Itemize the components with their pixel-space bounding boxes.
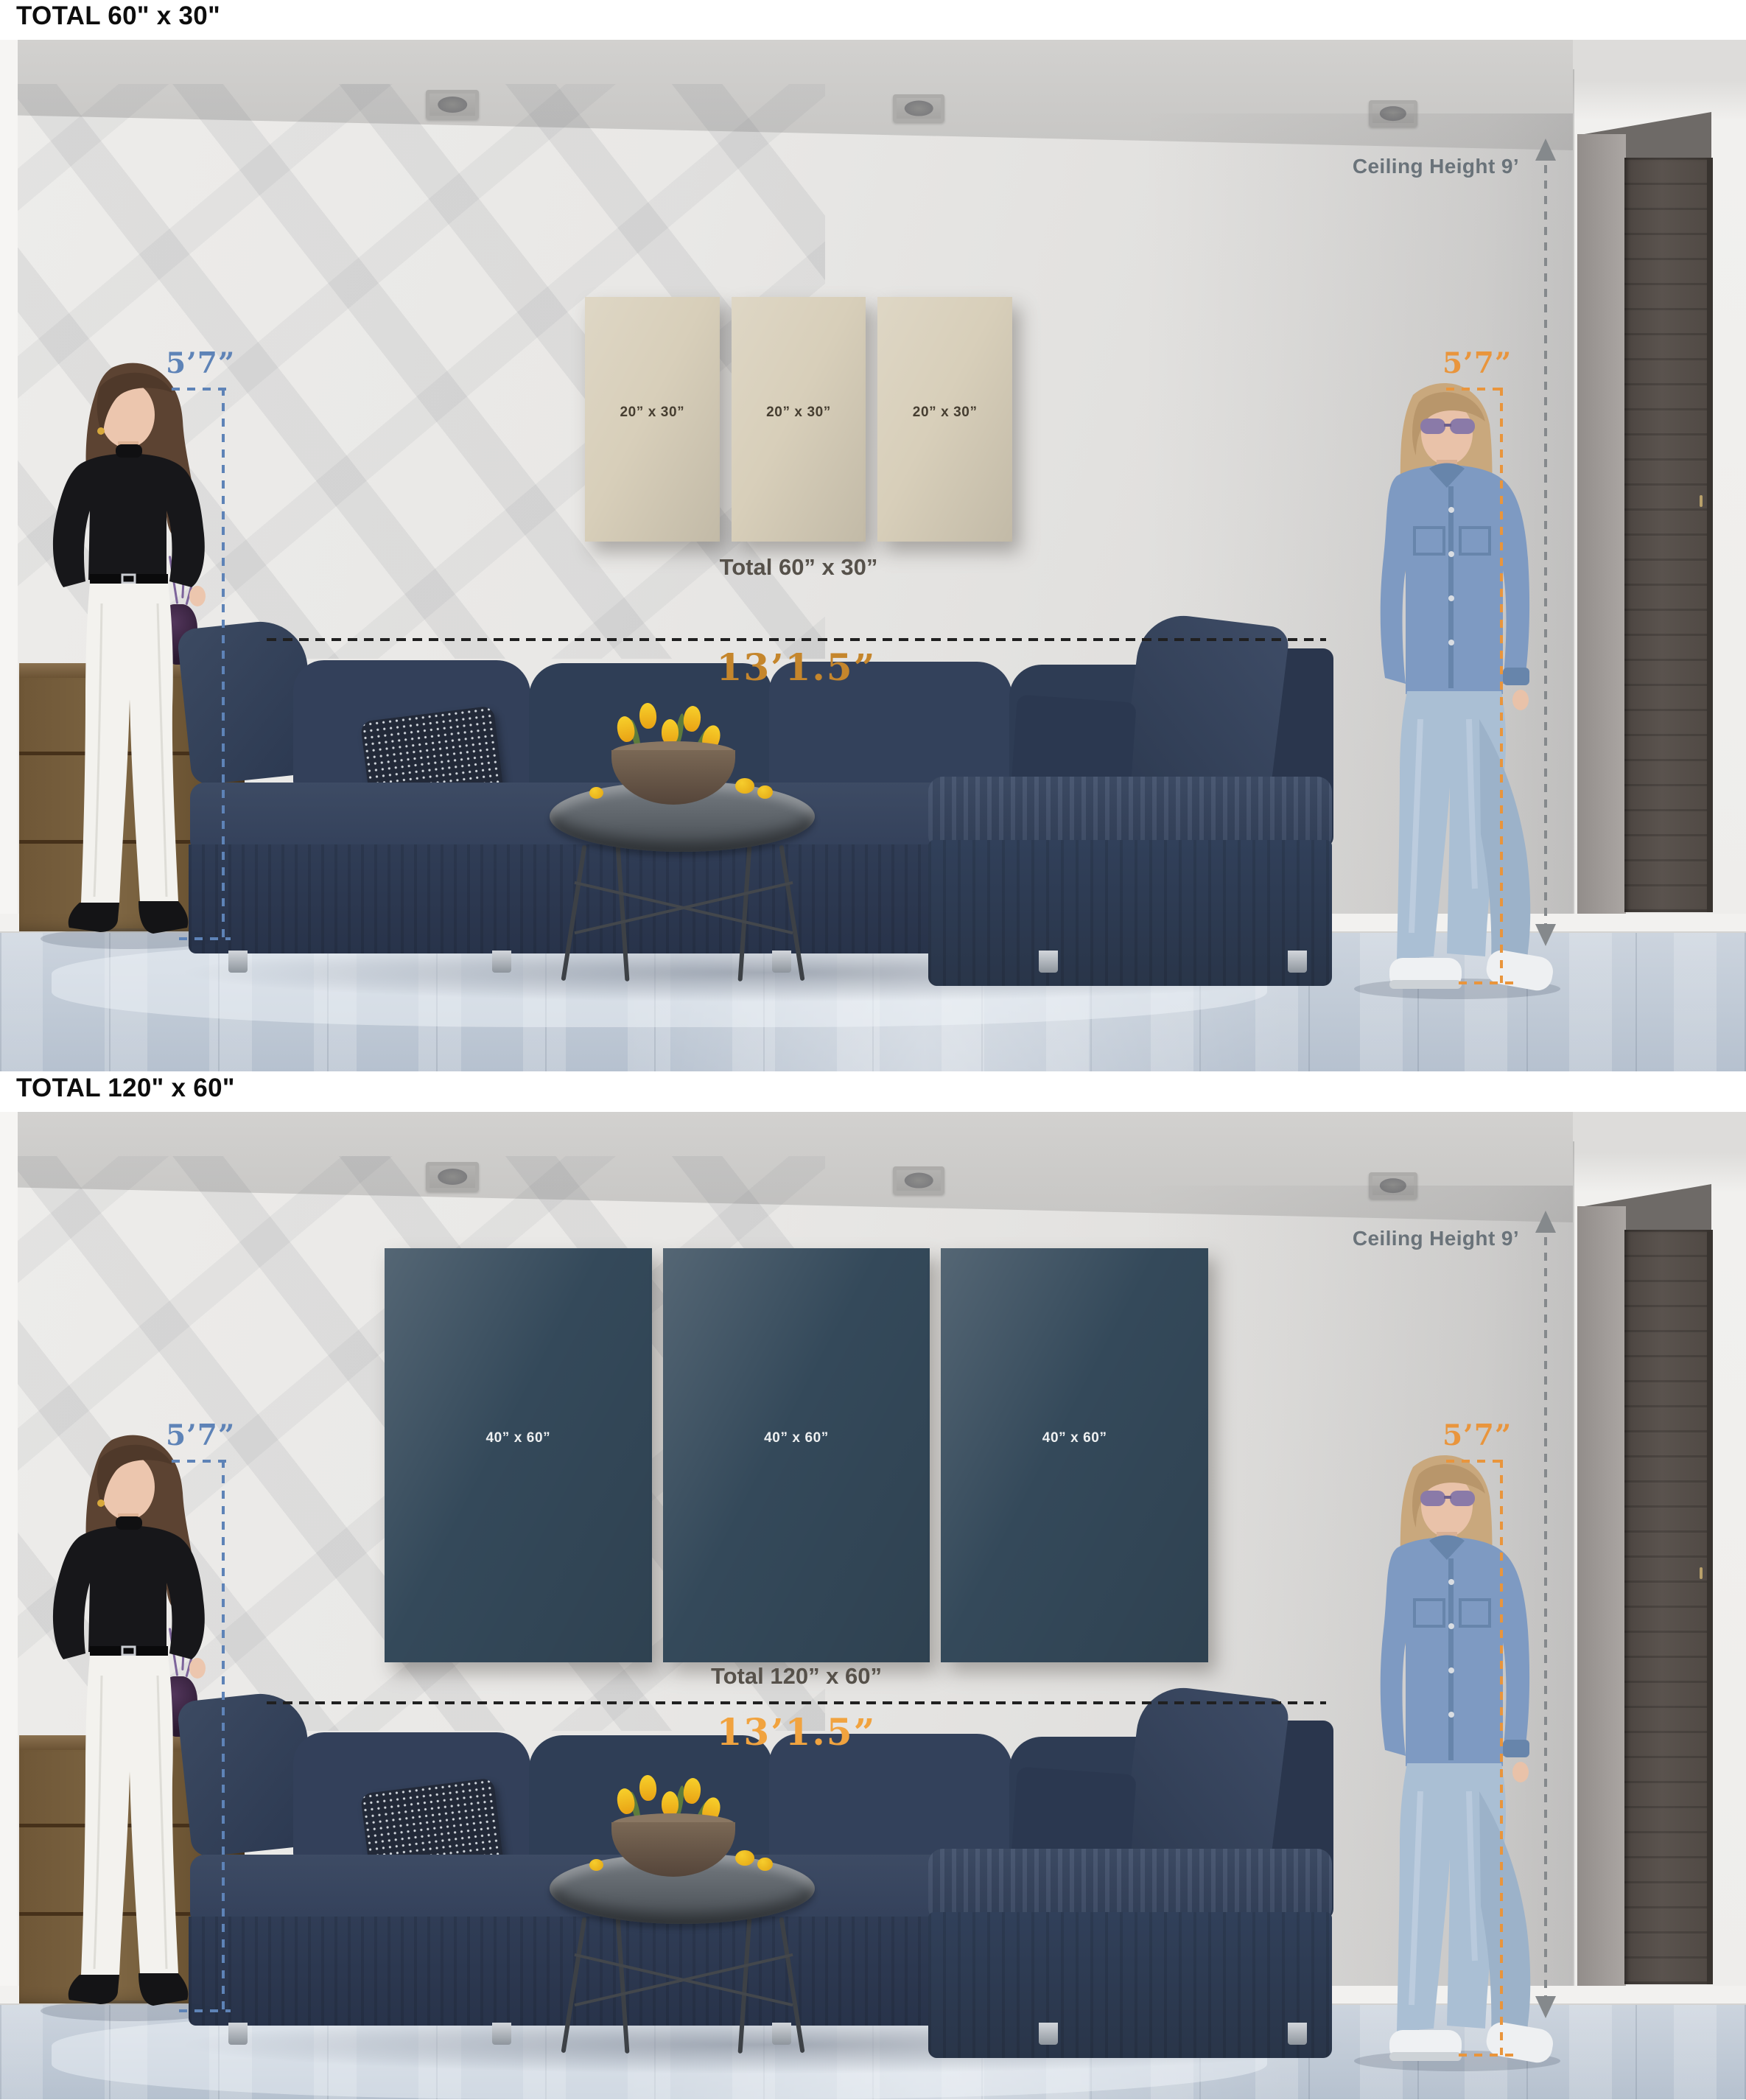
ceiling-height-label: Ceiling Height 9’ — [1319, 155, 1519, 178]
table-leg — [779, 1917, 804, 2054]
jacket-button — [1448, 1712, 1454, 1718]
lemon — [735, 778, 754, 794]
chaise — [928, 840, 1332, 986]
canvas-total-caption: Total 60” x 30” — [585, 554, 1012, 581]
jacket-button — [1448, 1623, 1454, 1629]
table-leg — [738, 844, 752, 981]
table-leg — [616, 844, 630, 981]
canvas-panel: 20” x 30” — [732, 297, 866, 542]
hand — [1512, 1762, 1529, 1782]
chaise — [928, 1912, 1332, 2058]
figure-shadow — [41, 928, 217, 949]
arrow-down-icon — [1535, 1996, 1556, 2018]
recessed-light — [893, 1166, 944, 1194]
canvas-panel: 20” x 30” — [585, 297, 720, 542]
shoe — [69, 903, 119, 932]
denim-jacket — [1381, 1537, 1529, 1766]
sofa-foot — [1039, 2023, 1058, 2045]
hand — [189, 1658, 206, 1679]
table-leg — [779, 845, 804, 981]
dashed-line — [1446, 388, 1504, 391]
jacket-cuff — [1503, 668, 1529, 685]
sunglasses-bridge — [1444, 1496, 1451, 1499]
canvas-size-label: 20” x 30” — [732, 405, 866, 421]
room-scene: 20” x 30” 20” x 30” 20” x 30” Total 60” … — [0, 40, 1746, 1071]
sunglasses — [1450, 1491, 1475, 1506]
lemon — [589, 1859, 603, 1871]
dashed-line — [1544, 1237, 1547, 1998]
sneaker-sole — [1389, 980, 1462, 989]
jacket-button — [1448, 1579, 1454, 1585]
jacket-button — [1448, 1667, 1454, 1673]
canvas-size-label: 40” x 60” — [663, 1430, 930, 1446]
woman-black-outfit — [7, 1425, 250, 2023]
right-height-label: 5’7” — [1442, 346, 1510, 380]
door-edge — [1707, 158, 1713, 912]
arrow-down-icon — [1535, 924, 1556, 946]
dashed-line — [1459, 981, 1521, 984]
door-edge — [1707, 1230, 1713, 1984]
coffee-table — [547, 735, 821, 983]
door-jamb — [1577, 134, 1626, 915]
sofa-foot — [228, 2023, 248, 2045]
chaise-cushion — [928, 1849, 1332, 1922]
room-scene: 40” x 60” 40” x 60” 40” x 60” Total 120”… — [0, 1112, 1746, 2099]
jacket-button — [1448, 507, 1454, 513]
lemon — [757, 785, 773, 799]
width-dimension-line — [267, 1701, 1326, 1704]
arrow-up-icon — [1535, 1211, 1556, 1233]
sofa-foot — [492, 2023, 511, 2045]
black-top — [53, 1526, 205, 1660]
canvas-size-label: 40” x 60” — [385, 1430, 652, 1446]
canvas-set: 20” x 30” 20” x 30” 20” x 30” — [585, 297, 1012, 542]
width-dimension-label: 13’1.5” — [267, 1710, 1326, 1754]
recessed-light — [426, 1162, 479, 1191]
jacket-placket — [1448, 1558, 1454, 1760]
jacket-button — [1448, 595, 1454, 601]
canvas-size-label: 40” x 60” — [941, 1430, 1208, 1446]
figure-shadow — [41, 2001, 217, 2021]
sunglasses — [1420, 1491, 1445, 1506]
arrow-up-icon — [1535, 139, 1556, 161]
canvas-size-label: 20” x 30” — [877, 405, 1012, 421]
hallway — [1573, 40, 1746, 933]
woman-black-outfit — [7, 353, 250, 951]
dashed-line — [1446, 1460, 1504, 1463]
shoe — [139, 1973, 188, 2006]
woman-denim-outfit — [1303, 373, 1579, 1001]
sofa-foot — [228, 951, 248, 973]
panel-title: TOTAL 120" x 60" — [16, 1074, 235, 1103]
table-leg — [561, 1917, 586, 2054]
canvas-panel: 40” x 60” — [941, 1248, 1208, 1662]
width-dimension-label: 13’1.5” — [267, 645, 1326, 689]
jacket-cuff — [1503, 1740, 1529, 1757]
sneaker-sole — [1389, 2052, 1462, 2061]
collar — [116, 1516, 142, 1530]
lemon — [589, 787, 603, 799]
door — [1624, 158, 1707, 912]
dashed-line — [1544, 165, 1547, 925]
right-height-label: 5’7” — [1442, 1418, 1510, 1452]
jacket-button — [1448, 640, 1454, 645]
shoe — [139, 901, 188, 934]
door-handle — [1700, 495, 1703, 507]
door — [1624, 1230, 1707, 1984]
coffee-table — [547, 1807, 821, 2055]
canvas-panel: 40” x 60” — [663, 1248, 930, 1662]
dashed-line — [1500, 388, 1503, 983]
recessed-light — [426, 90, 479, 119]
table-leg — [738, 1917, 752, 2054]
earring — [97, 1499, 105, 1507]
black-top — [53, 454, 205, 588]
earring — [97, 427, 105, 435]
chaise-cushion — [928, 777, 1332, 850]
sofa-foot — [1039, 951, 1058, 973]
recessed-light — [1369, 1172, 1417, 1199]
recessed-light — [1369, 100, 1417, 127]
size-option-panel: TOTAL 120" x 60" — [0, 1072, 1746, 2100]
table-leg — [616, 1917, 630, 2054]
jacket-placket — [1448, 486, 1454, 688]
panel-title: TOTAL 60" x 30" — [16, 1, 220, 31]
canvas-panel: 40” x 60” — [385, 1248, 652, 1662]
hallway — [1573, 1112, 1746, 2005]
ceiling-height-label: Ceiling Height 9’ — [1319, 1227, 1519, 1250]
dashed-line — [1500, 1460, 1503, 2055]
hand — [189, 586, 206, 606]
woman-denim-outfit — [1303, 1445, 1579, 2073]
table-leg — [561, 845, 586, 981]
lemon — [757, 1858, 773, 1871]
jacket-button — [1448, 551, 1454, 557]
dashed-line — [1459, 2054, 1521, 2057]
sofa-foot — [492, 951, 511, 973]
size-option-panel: TOTAL 60" x 30" — [0, 0, 1746, 1072]
canvas-size-label: 20” x 30” — [585, 405, 720, 421]
canvas-panel: 20” x 30” — [877, 297, 1012, 542]
shoe — [69, 1975, 119, 2004]
sunglasses-bridge — [1444, 424, 1451, 427]
door-handle — [1700, 1567, 1703, 1579]
sunglasses — [1450, 419, 1475, 434]
recessed-light — [893, 94, 944, 122]
hand — [1512, 690, 1529, 710]
canvas-set: 40” x 60” 40” x 60” 40” x 60” — [385, 1248, 1208, 1662]
sunglasses — [1420, 419, 1445, 434]
collar — [116, 444, 142, 458]
width-dimension-line — [267, 638, 1326, 641]
door-jamb — [1577, 1206, 1626, 1987]
lemon — [735, 1850, 754, 1866]
denim-jacket — [1381, 465, 1529, 694]
canvas-total-caption: Total 120” x 60” — [385, 1663, 1208, 1690]
